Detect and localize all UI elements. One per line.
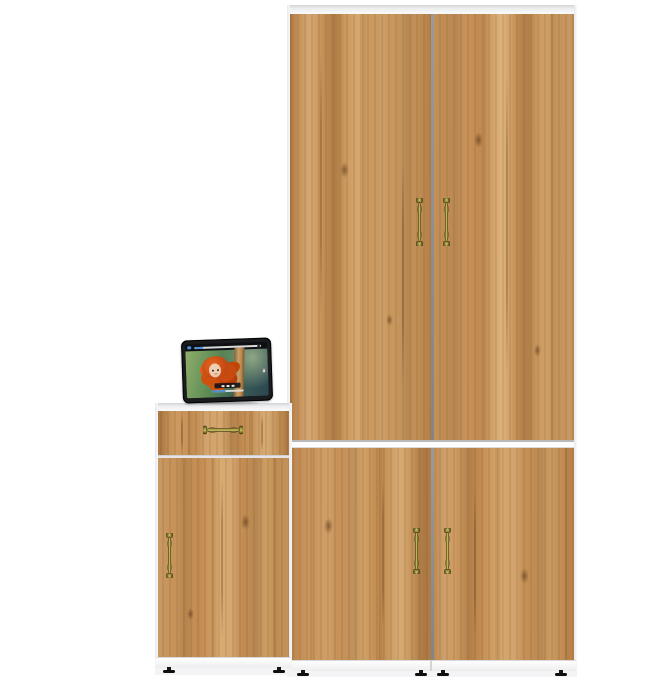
wardrobe xyxy=(287,5,577,677)
wood-grain-streak xyxy=(506,74,508,374)
cabinet-right-side-panel xyxy=(289,403,292,657)
cabinet-foot xyxy=(273,667,285,673)
wardrobe-right-side-panel xyxy=(574,5,577,660)
product-render-stage xyxy=(0,0,665,700)
cabinet-door-handle xyxy=(165,533,174,578)
scrubber-progress-fill xyxy=(194,347,203,349)
wood-grain-knot xyxy=(520,568,529,584)
wood-grain-streak xyxy=(320,54,322,314)
wardrobe-middle-shelf-panel xyxy=(287,440,577,448)
wood-grain-knot xyxy=(340,162,349,178)
wardrobe-upper-right-door xyxy=(434,14,575,440)
wardrobe-upper-left-door-handle xyxy=(415,198,424,246)
wood-grain-knot xyxy=(324,518,333,534)
video-character-eye xyxy=(217,369,219,371)
wardrobe-upper-right-door-handle xyxy=(442,198,451,246)
wood-grain-knot xyxy=(187,608,194,620)
wardrobe-foot xyxy=(415,670,427,676)
side-cabinet xyxy=(155,403,292,675)
cabinet-door xyxy=(157,458,290,657)
wardrobe-lower-left-door xyxy=(290,448,431,660)
wardrobe-lower-left-door-handle xyxy=(412,528,421,574)
tablet xyxy=(181,337,273,403)
video-frame xyxy=(185,349,269,399)
wardrobe-foot xyxy=(437,670,449,676)
wardrobe-plinth xyxy=(288,660,576,671)
wardrobe-lower-right-door-handle xyxy=(443,528,452,574)
cabinet-drawer-handle xyxy=(203,424,243,436)
wardrobe-lower-doors xyxy=(290,448,574,660)
wardrobe-foot xyxy=(297,670,309,676)
wardrobe-upper-doors xyxy=(290,14,574,440)
cabinet-plinth xyxy=(156,657,291,668)
wardrobe-top-panel xyxy=(287,5,577,14)
tablet-screen xyxy=(185,342,269,399)
wood-grain-streak xyxy=(261,415,263,451)
wardrobe-plinth-split-line xyxy=(430,661,432,671)
wardrobe-upper-left-door xyxy=(290,14,431,440)
wood-grain-knot xyxy=(241,514,250,530)
cabinet-top-panel xyxy=(155,403,292,411)
rewind-icon xyxy=(221,385,224,387)
video-thumbnail-chip xyxy=(187,346,191,349)
playback-progress-fill xyxy=(212,390,226,393)
cabinet-foot xyxy=(163,667,175,673)
wood-grain-knot xyxy=(534,344,541,357)
scrubber-knob-icon xyxy=(257,344,260,347)
wood-grain-knot xyxy=(474,132,483,148)
control-bar-icon xyxy=(214,383,240,389)
cabinet-left-side-panel xyxy=(155,403,158,657)
video-character-eye xyxy=(212,370,214,372)
wood-grain-streak xyxy=(474,488,476,638)
forward-icon xyxy=(231,384,234,386)
wood-grain-knot xyxy=(386,314,393,326)
video-character-mouth xyxy=(214,373,217,374)
wardrobe-lower-right-door xyxy=(434,448,575,660)
wood-grain-streak xyxy=(402,164,404,384)
wood-grain-streak xyxy=(382,478,384,628)
play-icon xyxy=(226,384,229,386)
wood-grain-streak xyxy=(221,478,223,638)
wardrobe-foot xyxy=(555,670,567,676)
wood-grain-streak xyxy=(181,415,183,451)
fullscreen-icon xyxy=(262,369,266,373)
